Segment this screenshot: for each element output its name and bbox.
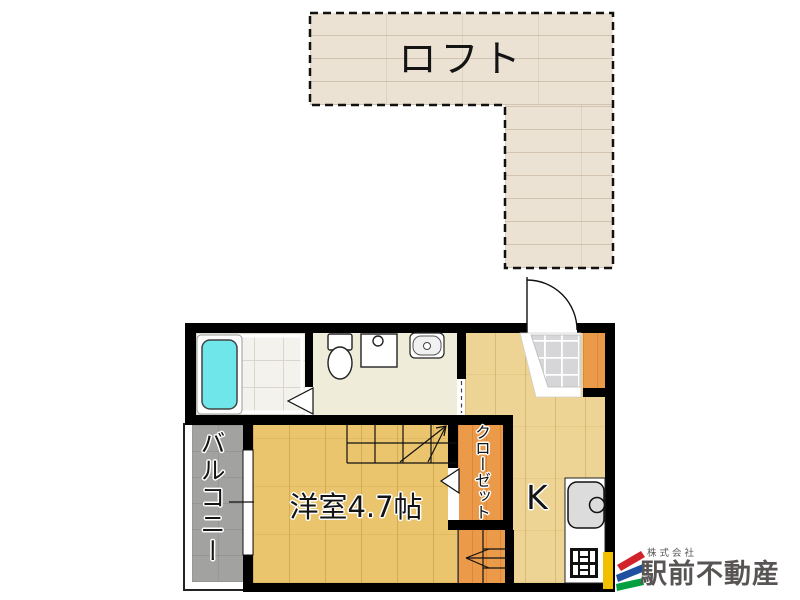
kitchen-label: K — [515, 478, 559, 517]
closet-label: クローゼット — [470, 424, 493, 522]
company-name-label: 駅前不動産 — [640, 552, 780, 591]
loft-floor-right — [505, 105, 613, 268]
bathroom-floor — [196, 333, 305, 415]
loft-label: ロフト — [310, 28, 613, 83]
entry-door-swing-icon — [527, 277, 577, 333]
entry-side-strip-floor — [583, 333, 605, 388]
floorplan-canvas: ロフト バルコニー 洋室4.7帖 クローゼット K 株式会社 駅前不動産 — [0, 0, 800, 600]
balcony-label: バルコニー — [196, 430, 229, 582]
washroom-floor — [313, 333, 457, 415]
company-logo-mark — [603, 551, 645, 591]
entry-stairs-floor — [458, 530, 507, 583]
western-room-label: 洋室4.7帖 — [250, 484, 462, 526]
